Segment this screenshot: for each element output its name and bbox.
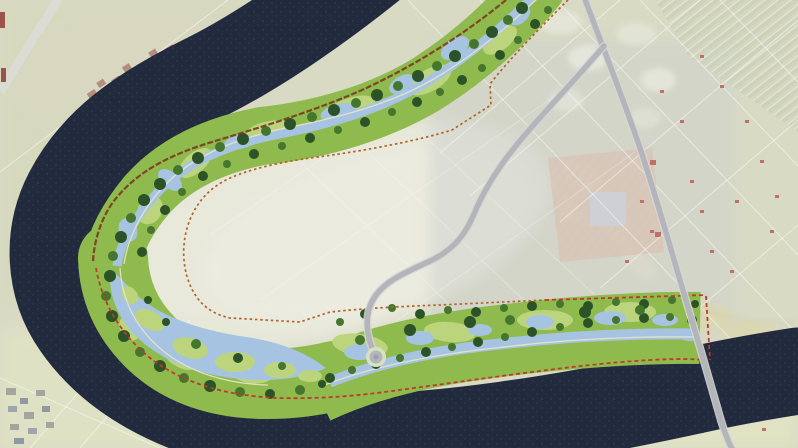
circular-lookout-node [366,347,386,367]
map-canvas [0,0,798,448]
masterplan-svg [0,0,798,448]
